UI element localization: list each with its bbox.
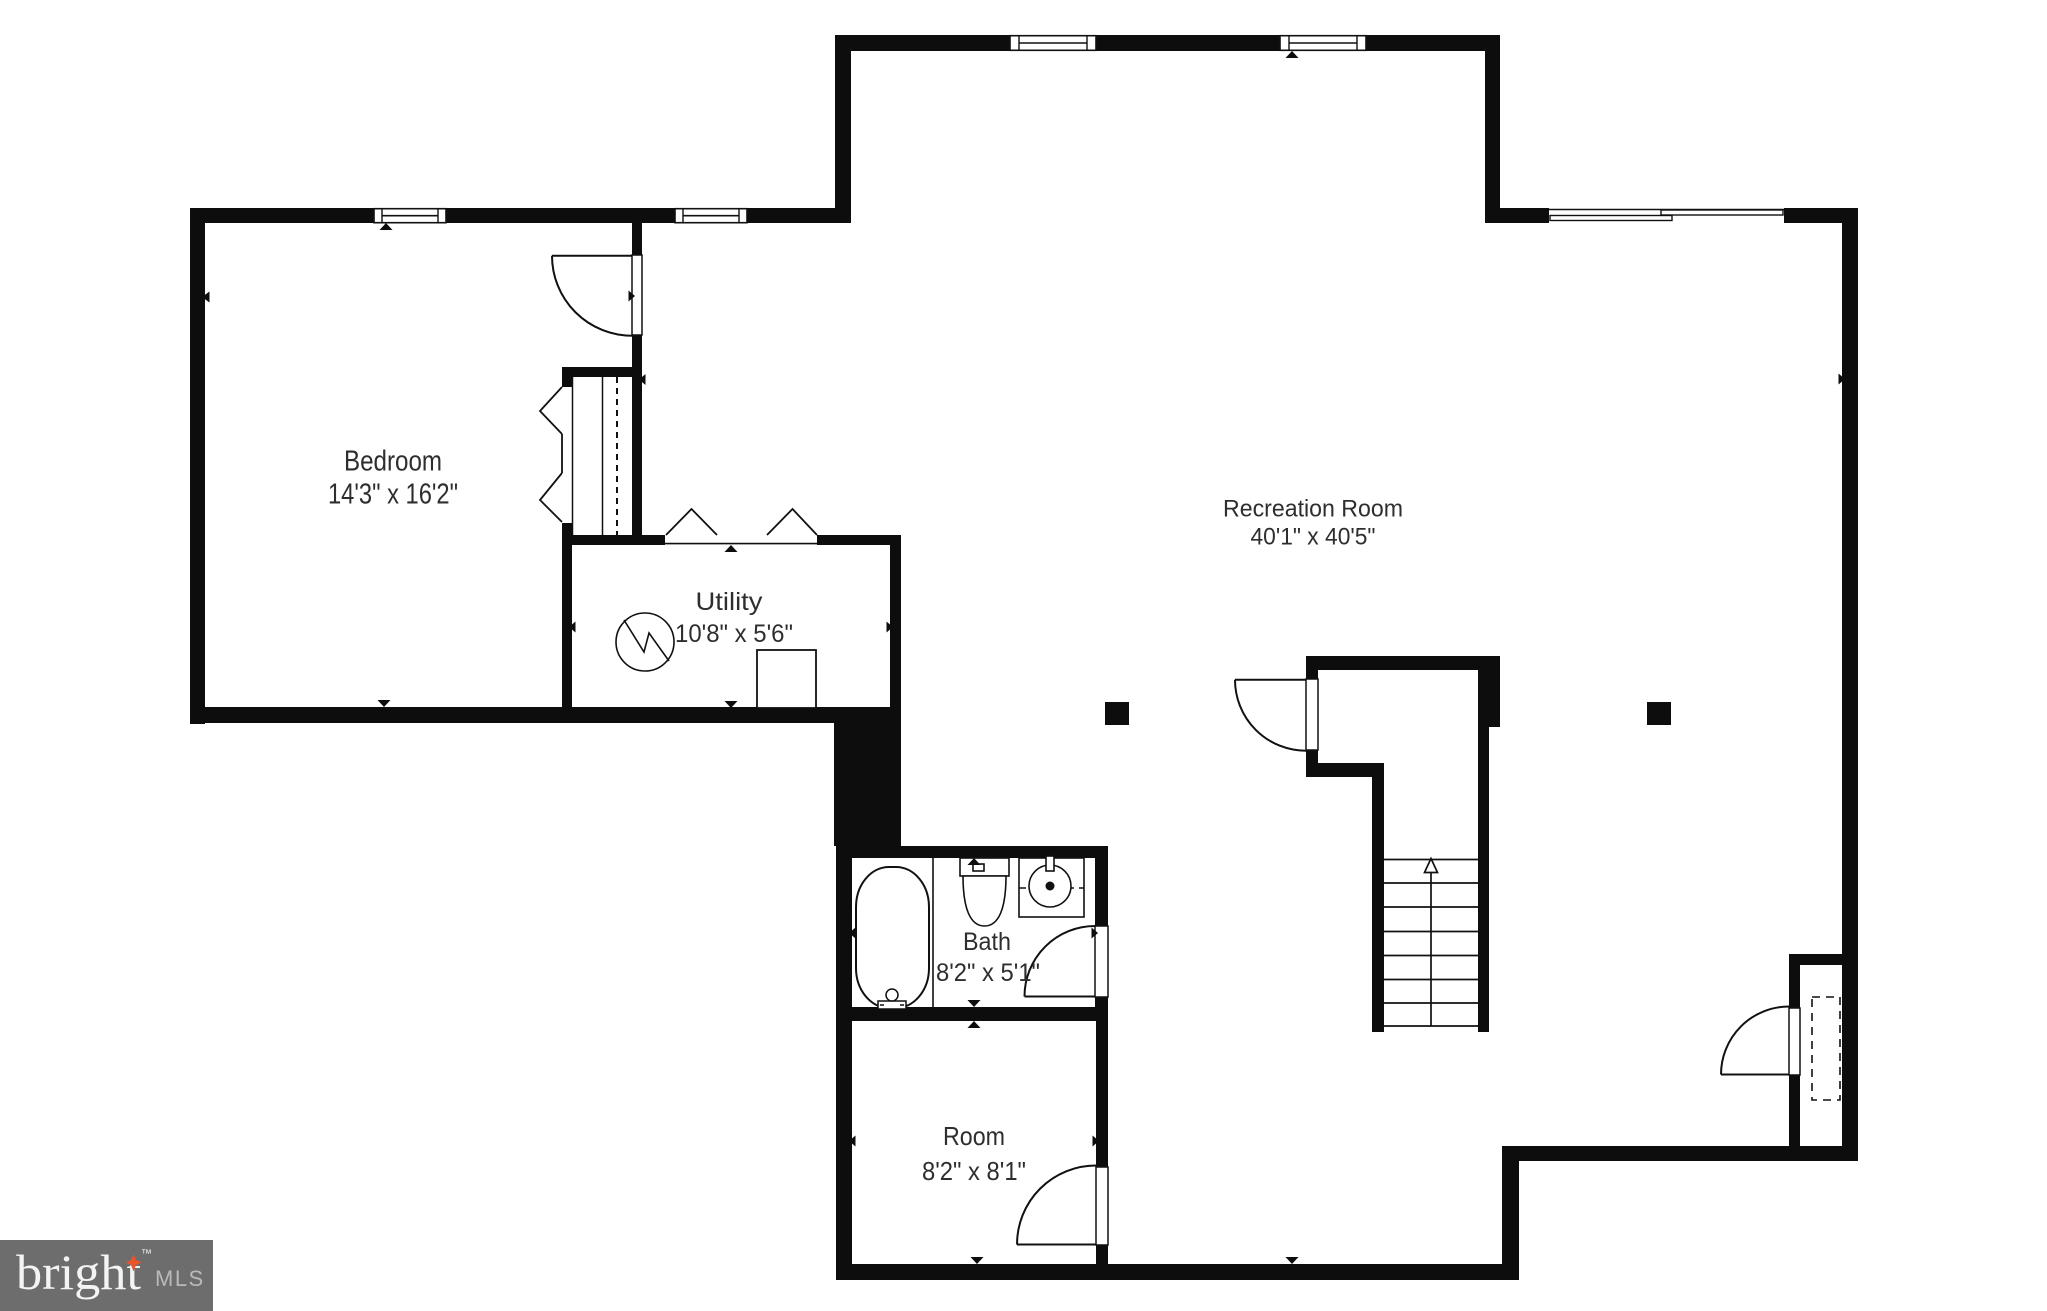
svg-text:Bedroom: Bedroom <box>344 446 442 478</box>
svg-text:MLS: MLS <box>155 1266 205 1291</box>
svg-text:8'2" x 5'1": 8'2" x 5'1" <box>936 959 1040 987</box>
svg-text:bright: bright <box>16 1244 141 1300</box>
svg-text:10'8" x 5'6": 10'8" x 5'6" <box>675 620 793 648</box>
svg-text:14'3" x 16'2": 14'3" x 16'2" <box>328 479 458 511</box>
svg-text:40'1" x 40'5": 40'1" x 40'5" <box>1251 524 1376 551</box>
svg-text:Recreation Room: Recreation Room <box>1223 496 1403 523</box>
svg-text:Bath: Bath <box>963 928 1011 956</box>
svg-text:Room: Room <box>943 1121 1005 1151</box>
svg-text:8'2" x 8'1": 8'2" x 8'1" <box>922 1156 1026 1186</box>
svg-text:Utility: Utility <box>696 588 764 616</box>
svg-text:™: ™ <box>141 1248 152 1260</box>
